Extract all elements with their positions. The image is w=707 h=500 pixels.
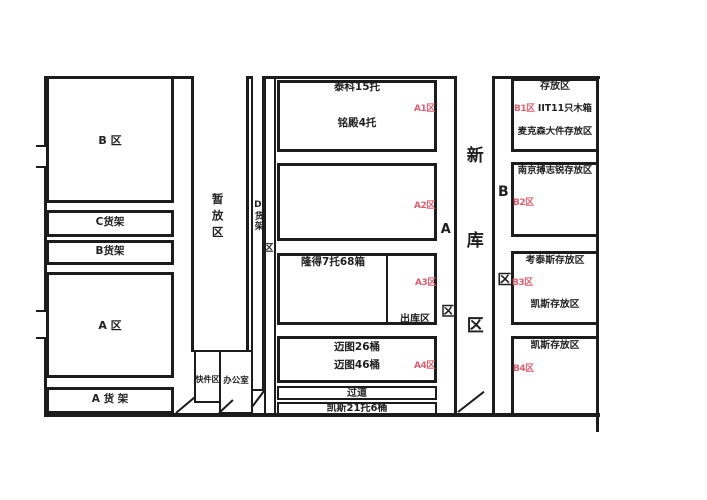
zone-a3-tag: A3区	[415, 279, 436, 289]
zone-b2-line1: 南京搏志锐存放区	[511, 166, 599, 176]
rack-d-suffix-label: 区	[264, 244, 274, 254]
outbound-area-label: 出库区	[400, 314, 430, 325]
new-warehouse-label: 新库区	[463, 146, 482, 401]
zone-b4-tag: B4区	[513, 365, 534, 375]
rack-d-column	[251, 76, 264, 391]
zone-a2-box	[277, 163, 437, 241]
express-area-label: 快件区	[194, 376, 221, 385]
door-jamb-tick	[36, 145, 46, 147]
zone-a4-line1: 迈图26桶	[277, 342, 437, 354]
rack-c-label: C货架	[46, 217, 174, 229]
zone-a-label: A 区	[46, 320, 174, 332]
office-label: 办公室	[219, 377, 253, 386]
zone-b1-title: 存放区	[511, 81, 599, 92]
zone-a2-tag: A2区	[414, 202, 435, 212]
door-swing-line	[175, 397, 195, 414]
corridor-b-label: B区	[495, 184, 510, 358]
zone-a4-line2: 迈图46桶	[277, 360, 437, 372]
warehouse-floorplan: B 区 C货架 B货架 A 区 A 货 架 暂放区 快件区 办公室 D货架 区 …	[0, 0, 707, 500]
zone-a1-line2: 铭殿4托	[277, 118, 437, 130]
zone-b4-line1: 凯斯存放区	[511, 341, 599, 352]
corridor-a-label: A区	[438, 222, 452, 384]
rack-b-label: B货架	[46, 246, 174, 258]
zone-b-label: B 区	[46, 135, 174, 147]
zone-b1-line2: 麦克森大件存放区	[511, 127, 599, 137]
rack-d-label: D货架	[252, 200, 262, 231]
zone-b1-row: B1区 IIT11只木箱	[514, 104, 592, 115]
zone-b3-line1: 考泰斯存放区	[511, 256, 599, 267]
door-swing-line	[251, 390, 265, 407]
inner-wall	[274, 76, 276, 413]
zone-a1-line1: 泰科15托	[277, 82, 437, 94]
rack-a-label: A 货 架	[46, 394, 174, 406]
bottom-strip-label: 凯斯21托6桶	[277, 403, 437, 414]
zone-a1-tag: A1区	[414, 105, 435, 115]
zone-b3-line2: 凯斯存放区	[511, 300, 599, 311]
zone-b1-line1: IIT11只木箱	[538, 103, 592, 114]
aisle-label: 过道	[277, 388, 437, 399]
zone-a3-line1: 隆得7托68箱	[277, 257, 389, 269]
door-jamb-tick	[36, 166, 46, 168]
door-jamb-tick	[36, 337, 46, 339]
zone-b1-tag: B1区	[514, 104, 535, 114]
zone-b2-tag: B2区	[513, 199, 534, 209]
zone-b3-tag: B3区	[512, 279, 533, 289]
staging-area-label: 暂放区	[211, 193, 224, 243]
door-jamb-tick	[36, 310, 46, 312]
zone-a4-tag: A4区	[414, 362, 435, 372]
